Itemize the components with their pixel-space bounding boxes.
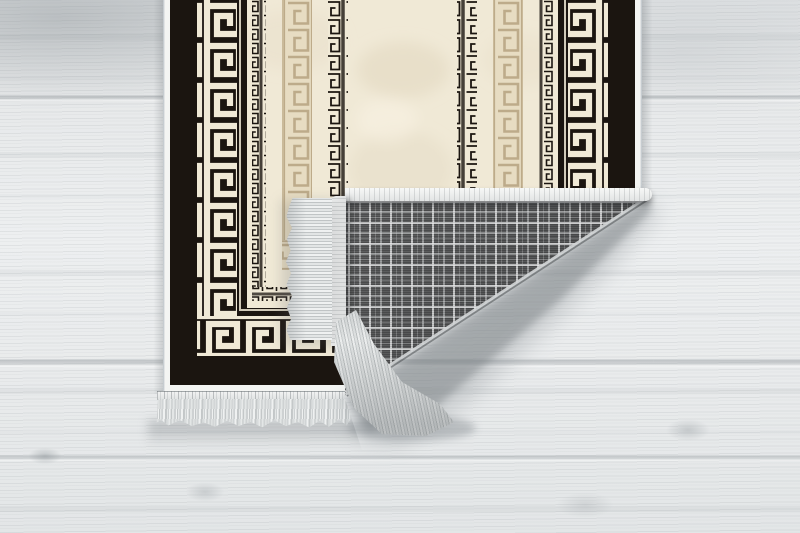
product-photo [0,0,800,533]
flap-selvage-top [345,188,652,201]
fold-edge [0,0,800,533]
flap-fringe-tassels [285,198,332,340]
